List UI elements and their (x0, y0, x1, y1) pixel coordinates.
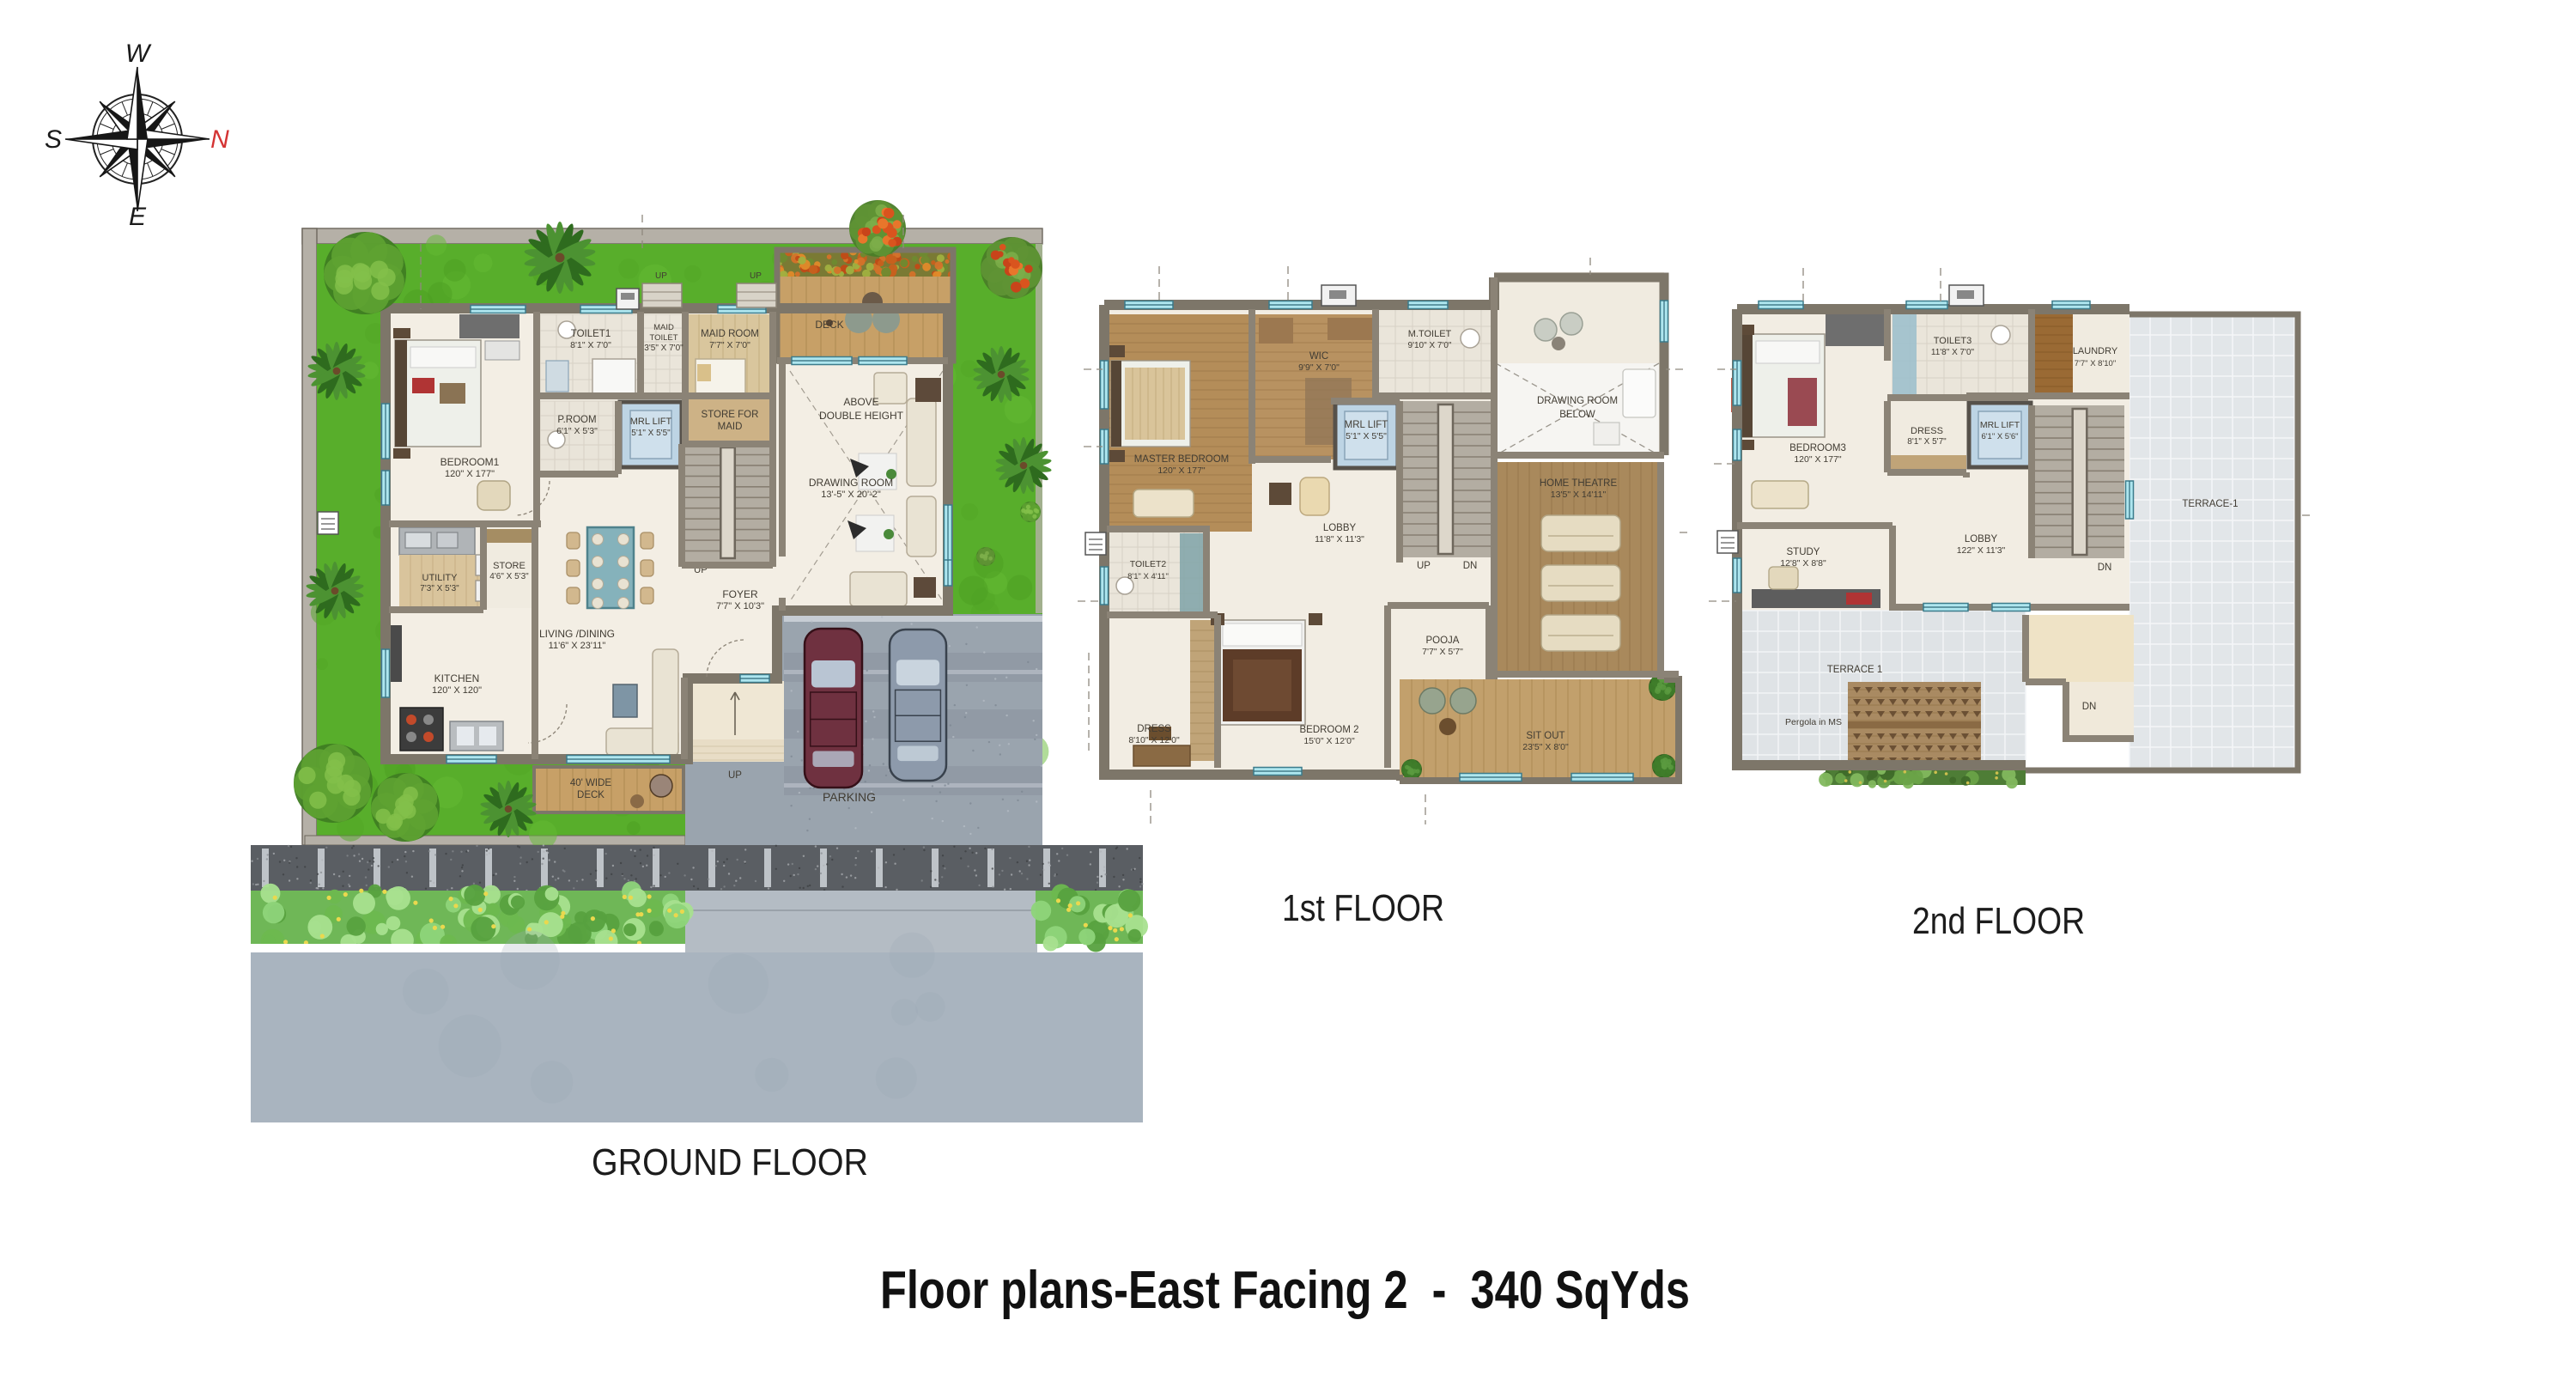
svg-text:DN: DN (2082, 702, 2097, 712)
svg-text:N: N (210, 125, 229, 154)
svg-text:DN: DN (2098, 563, 2112, 573)
svg-text:4'6" X 5'3": 4'6" X 5'3" (489, 572, 529, 581)
svg-text:GROUND FLOOR: GROUND FLOOR (592, 1141, 868, 1183)
svg-text:6'1" X 5'3": 6'1" X 5'3" (556, 426, 598, 436)
svg-text:BELOW: BELOW (1559, 410, 1595, 420)
svg-text:UP: UP (655, 271, 667, 281)
svg-text:8'1" X 4'11": 8'1" X 4'11" (1127, 572, 1169, 581)
svg-text:WIC: WIC (1309, 351, 1328, 362)
svg-text:UTILITY: UTILITY (422, 573, 459, 583)
svg-text:BEDROOM1: BEDROOM1 (440, 456, 500, 468)
svg-text:TOILET2: TOILET2 (1130, 559, 1167, 569)
svg-text:BEDROOM3: BEDROOM3 (1789, 443, 1846, 453)
svg-text:POOJA: POOJA (1426, 636, 1460, 646)
svg-text:MRL LIFT: MRL LIFT (1980, 420, 2020, 430)
svg-text:9'9" X 7'0": 9'9" X 7'0" (1298, 362, 1340, 373)
svg-text:MAID: MAID (718, 422, 743, 432)
svg-text:7'7" X 5'7": 7'7" X 5'7" (1422, 647, 1463, 657)
svg-text:15'0" X 12'0": 15'0" X 12'0" (1303, 736, 1355, 746)
svg-text:TOILET1: TOILET1 (571, 329, 611, 339)
svg-text:Pergola in MS: Pergola in MS (1785, 717, 1842, 727)
svg-text:STUDY: STUDY (1787, 547, 1820, 557)
svg-text:UP: UP (728, 770, 742, 781)
svg-text:122" X 11'3": 122" X 11'3" (1957, 545, 2006, 556)
svg-text:UP: UP (1417, 561, 1431, 571)
svg-text:13'5" X 14'11": 13'5" X 14'11" (1551, 490, 1607, 500)
svg-text:TERRACE-1: TERRACE-1 (2182, 499, 2238, 509)
svg-text:TOILET3: TOILET3 (1934, 336, 1971, 346)
svg-text:UP: UP (750, 271, 762, 281)
svg-text:7'7" X 8'10": 7'7" X 8'10" (2075, 359, 2116, 368)
svg-text:BEDROOM 2: BEDROOM 2 (1299, 725, 1358, 735)
svg-text:MAID ROOM: MAID ROOM (701, 329, 759, 339)
svg-text:7'3" X 5'3": 7'3" X 5'3" (420, 584, 459, 593)
svg-text:MRL LIFT: MRL LIFT (630, 417, 672, 427)
svg-text:HOME THEATRE: HOME THEATRE (1540, 478, 1618, 489)
svg-text:DRESS: DRESS (1137, 724, 1171, 734)
svg-text:DRAWING ROOM: DRAWING ROOM (1537, 396, 1618, 406)
svg-text:LOBBY: LOBBY (1323, 523, 1357, 533)
svg-text:PARKING: PARKING (823, 790, 876, 804)
svg-text:40' WIDE: 40' WIDE (570, 778, 612, 788)
svg-text:DRAWING ROOM: DRAWING ROOM (809, 477, 893, 489)
svg-text:7'7" X 7'0": 7'7" X 7'0" (709, 340, 750, 350)
svg-text:LOBBY: LOBBY (1965, 534, 1998, 544)
svg-text:11'6" X 23'11": 11'6" X 23'11" (549, 641, 606, 651)
svg-text:8'1" X 7'0": 8'1" X 7'0" (570, 340, 611, 350)
svg-text:2nd FLOOR: 2nd FLOOR (1912, 900, 2085, 942)
svg-text:STORE FOR: STORE FOR (702, 410, 759, 420)
svg-text:DN: DN (1463, 561, 1478, 571)
svg-text:120" X 177": 120" X 177" (445, 469, 495, 479)
svg-text:TOILET: TOILET (649, 333, 677, 343)
svg-text:MAID: MAID (653, 323, 674, 332)
svg-text:5'1" X 5'5": 5'1" X 5'5" (631, 429, 671, 438)
svg-text:13'-5" X 20'-2": 13'-5" X 20'-2" (821, 490, 881, 500)
svg-text:KITCHEN: KITCHEN (434, 672, 480, 684)
svg-text:M.TOILET: M.TOILET (1408, 329, 1452, 339)
svg-text:8'1" X 5'7": 8'1" X 5'7" (1907, 437, 1947, 447)
svg-text:MASTER BEDROOM: MASTER BEDROOM (1134, 454, 1230, 465)
svg-text:6'1" X 5'6": 6'1" X 5'6" (1981, 432, 2018, 441)
svg-text:SIT OUT: SIT OUT (1526, 731, 1564, 741)
svg-text:LAUNDRY: LAUNDRY (2073, 346, 2118, 356)
svg-text:8'10" X 12'0": 8'10" X 12'0" (1128, 735, 1180, 745)
svg-text:DECK: DECK (577, 790, 605, 800)
svg-text:W: W (125, 40, 152, 68)
svg-text:1st FLOOR: 1st FLOOR (1282, 887, 1444, 929)
svg-text:11'8" X 7'0": 11'8" X 7'0" (1931, 348, 1975, 357)
svg-text:FOYER: FOYER (722, 588, 758, 600)
svg-text:5'1" X 5'5": 5'1" X 5'5" (1346, 431, 1387, 441)
svg-text:E: E (129, 203, 147, 231)
svg-text:9'10" X 7'0": 9'10" X 7'0" (1408, 341, 1452, 350)
svg-text:7'7" X 10'3": 7'7" X 10'3" (716, 601, 764, 611)
svg-text:3'5" X 7'0": 3'5" X 7'0" (644, 344, 683, 353)
svg-text:LIVING /DINING: LIVING /DINING (539, 628, 615, 640)
svg-text:ABOVE: ABOVE (843, 396, 878, 408)
svg-text:STORE: STORE (493, 561, 526, 571)
svg-text:DRESS: DRESS (1911, 426, 1943, 436)
svg-text:120" X 120": 120" X 120" (432, 685, 482, 696)
svg-text:TERRACE 1: TERRACE 1 (1827, 665, 1883, 675)
svg-text:DECK: DECK (815, 319, 843, 331)
svg-text:Floor plans-East Facing 2 -: Floor plans-East Facing 2 - 340 SqYds (880, 1261, 1690, 1320)
svg-text:DOUBLE HEIGHT: DOUBLE HEIGHT (819, 410, 904, 422)
svg-text:23'5" X 8'0": 23'5" X 8'0" (1522, 742, 1569, 752)
svg-text:120" X 177": 120" X 177" (1794, 454, 1842, 465)
svg-text:S: S (45, 125, 62, 154)
svg-text:MRL LIFT: MRL LIFT (1345, 420, 1388, 430)
svg-text:P.ROOM: P.ROOM (557, 415, 596, 425)
svg-text:11'8" X 11'3": 11'8" X 11'3" (1315, 534, 1364, 544)
svg-text:120" X 177": 120" X 177" (1157, 465, 1206, 476)
